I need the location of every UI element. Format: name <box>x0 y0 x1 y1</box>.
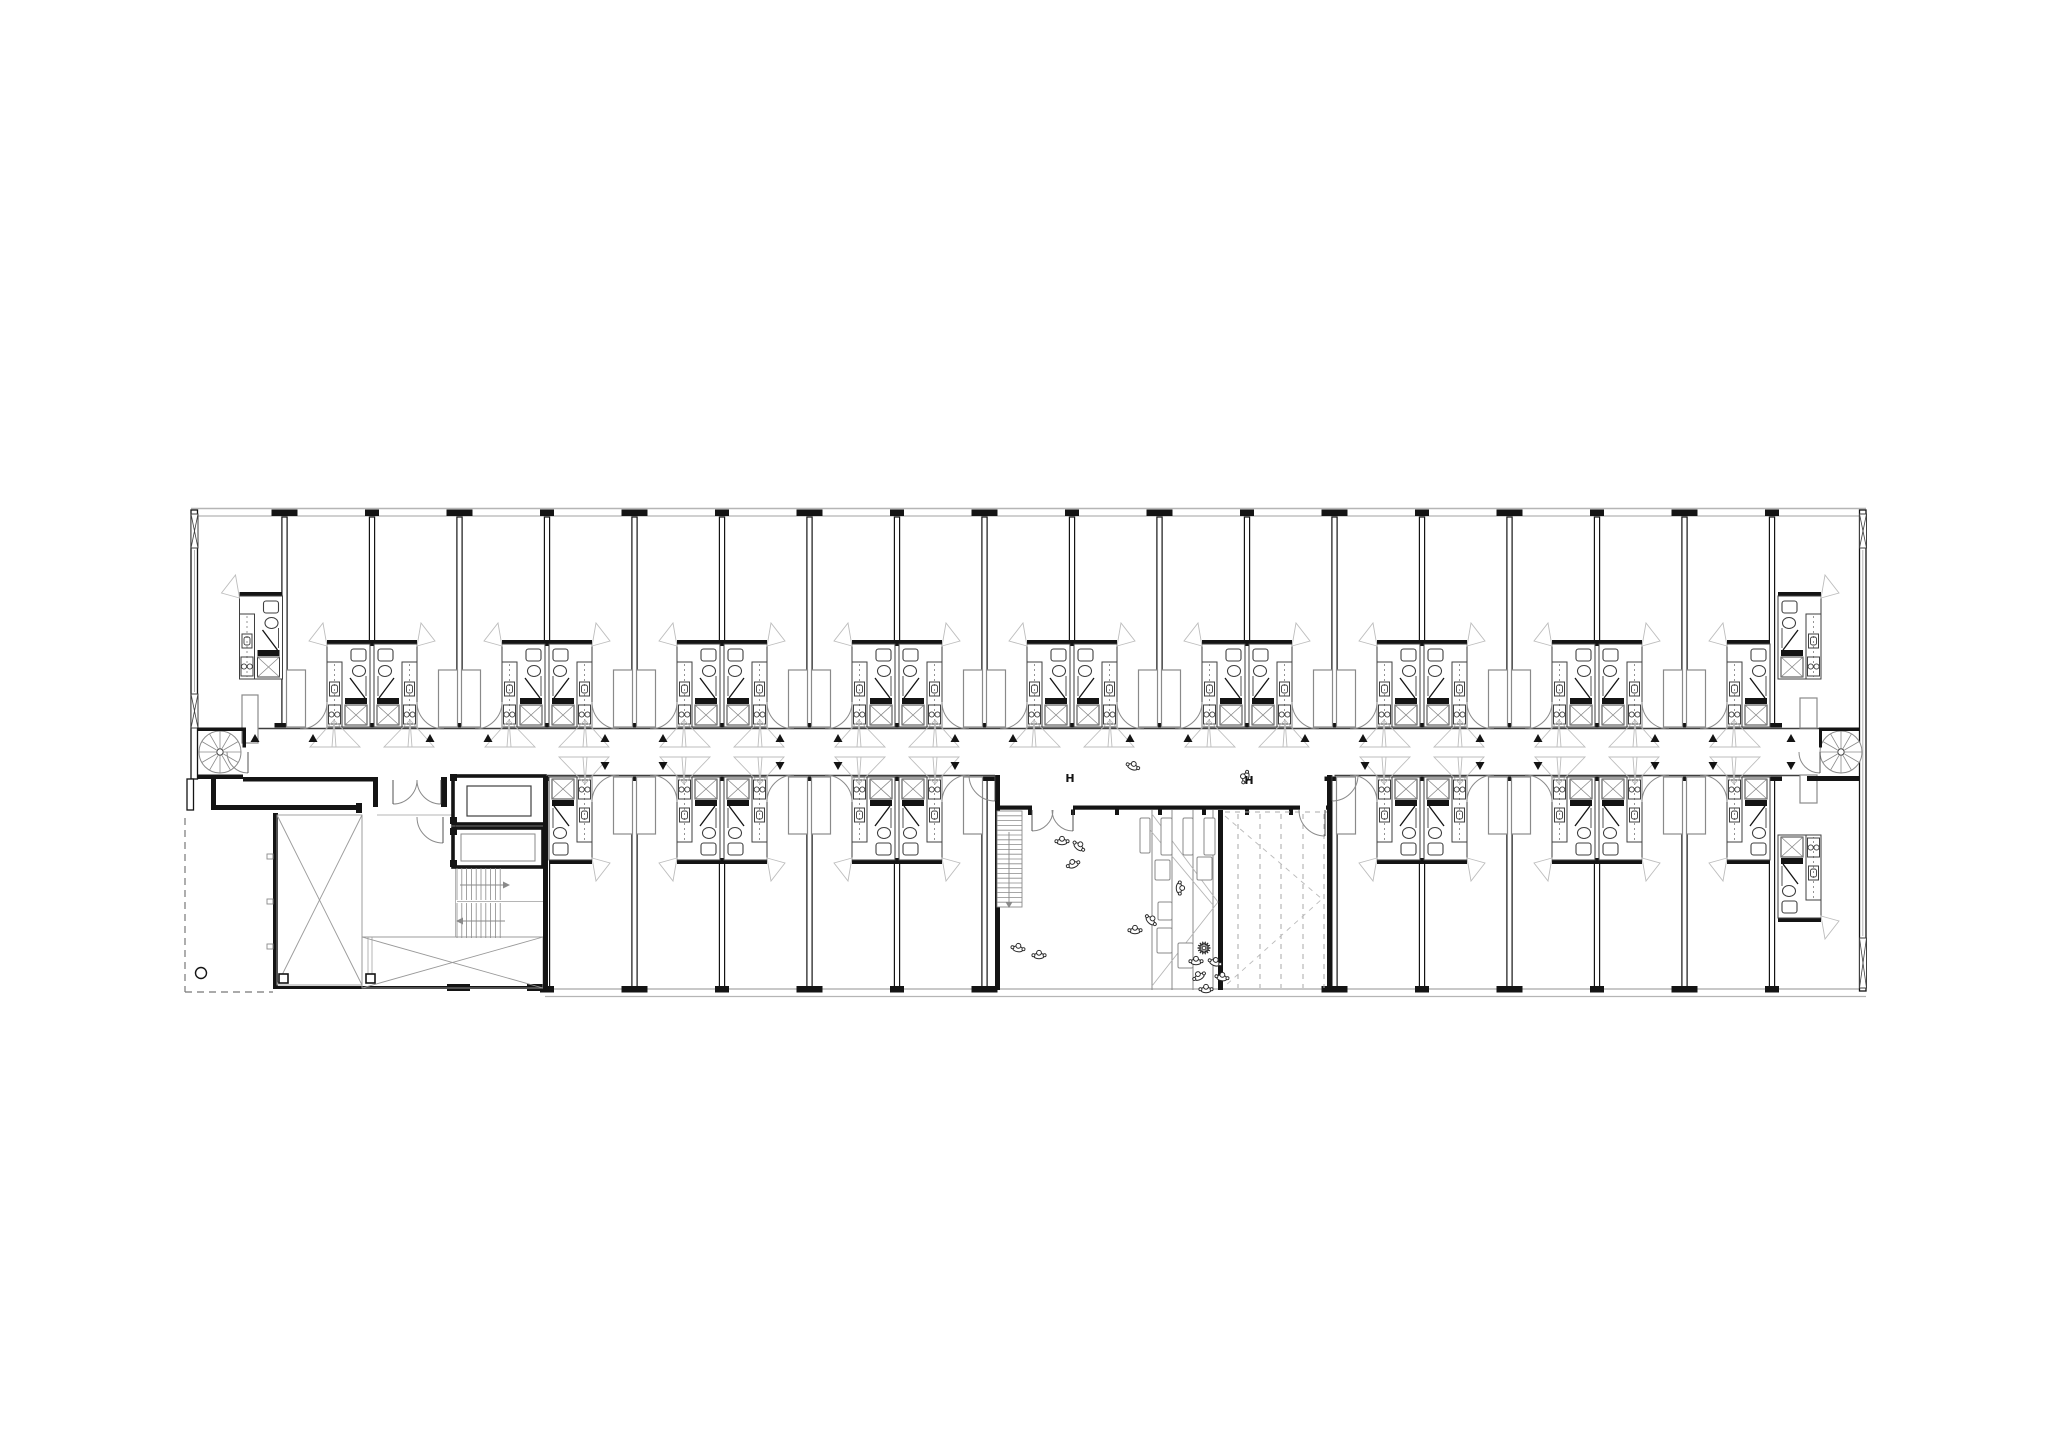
person-figure <box>1071 838 1087 854</box>
common-area <box>995 775 1332 990</box>
seat-cushion <box>1140 818 1150 853</box>
pod-cluster <box>222 575 283 679</box>
elevator-core <box>450 774 548 990</box>
column <box>279 974 288 983</box>
seat-cushion <box>1155 860 1170 880</box>
bathroom-pod <box>1778 575 1839 679</box>
person-figure <box>1128 925 1142 933</box>
wardrobe <box>964 777 983 834</box>
person-figure <box>1125 759 1141 772</box>
person-figure <box>1199 984 1213 992</box>
roof-deck <box>1225 812 1327 988</box>
void-cross <box>277 815 362 985</box>
corridor-label-h1: H <box>1065 772 1074 785</box>
seat-cushion <box>1157 928 1172 953</box>
person-figure <box>1065 857 1081 870</box>
pod-cluster <box>1778 835 1839 939</box>
tiered-seating <box>1140 810 1218 990</box>
bathroom-pod <box>1778 835 1839 939</box>
seat-cushion <box>1204 818 1215 855</box>
wardrobe <box>1337 777 1356 834</box>
corridor-walls <box>197 729 1859 776</box>
vestibule-wall <box>1807 776 1860 781</box>
corridor-label-h2: H <box>1244 774 1253 787</box>
core-staircase <box>456 868 543 938</box>
window-hatch <box>191 694 198 728</box>
vestibule-wall <box>197 728 246 732</box>
seat-cushion <box>1178 943 1193 968</box>
vestibule-wall <box>1822 728 1860 732</box>
person-figure <box>1010 942 1025 953</box>
common-staircase <box>997 811 1022 908</box>
seat-cushion <box>1158 902 1172 920</box>
wardrobe <box>287 670 306 727</box>
floor-plan: HH <box>0 0 2048 1448</box>
void-cross <box>362 937 543 988</box>
seat-cushion <box>1197 857 1212 880</box>
vestibule-wall <box>197 775 243 780</box>
person-figure <box>1214 971 1229 982</box>
window-hatch <box>1860 514 1867 548</box>
people-figures <box>1010 759 1251 992</box>
vestibule-wall <box>243 728 247 748</box>
pod-cluster <box>1778 575 1839 679</box>
column <box>366 974 375 983</box>
person-figure <box>1055 836 1069 844</box>
person-figure <box>1032 950 1046 958</box>
window-hatch <box>191 514 198 548</box>
facade-walls <box>187 509 1867 997</box>
spiral-staircase <box>1820 731 1862 773</box>
seat-cushion <box>1161 818 1172 855</box>
vestibule-wall <box>1819 728 1822 748</box>
bathroom-pod <box>222 575 283 679</box>
spiral-staircase <box>199 731 241 773</box>
floor-plan-page: HH <box>0 0 2048 1448</box>
window-hatch <box>1860 938 1867 988</box>
person-figure <box>1176 881 1184 895</box>
corridor-labels: H <box>1244 774 1253 787</box>
seat-cushion <box>1183 818 1193 855</box>
person-figure <box>1143 912 1159 928</box>
corridor-labels: H <box>1065 772 1074 785</box>
corridor-door-markers <box>251 734 1796 770</box>
plant-figure <box>1198 942 1211 955</box>
wardrobe <box>1800 698 1817 728</box>
